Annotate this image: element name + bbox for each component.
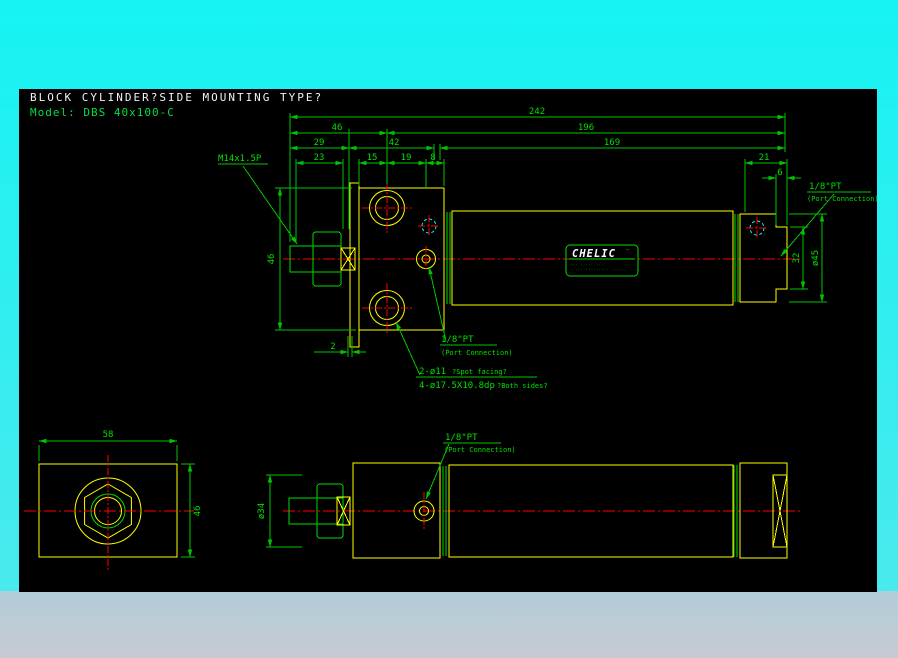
port-sublabel-mid: (Port Connection): [441, 349, 513, 357]
cad-viewer-window: BLOCK CYLINDER?SIDE MOUNTING TYPE? Model…: [0, 0, 898, 658]
counterbore-sublabel: ?Both sides?: [497, 382, 548, 390]
dim-15: 15: [367, 153, 378, 163]
dim-242: 242: [529, 107, 545, 117]
thread-label: M14x1.5P: [218, 154, 262, 164]
dim-21: 21: [759, 153, 770, 163]
dim-58: 58: [103, 430, 114, 440]
port-label-mid: 1/8"PT: [441, 335, 474, 345]
dim-dia45: ø45: [811, 250, 821, 266]
dim-46: 46: [332, 123, 343, 133]
spot-facing-sublabel: ?Spot facing?: [452, 368, 507, 376]
port-sublabel-rear: (Port Connection): [807, 195, 879, 203]
spot-facing-label: 2-ø11: [419, 367, 446, 377]
drawing-model: Model: DBS 40x100-C: [30, 106, 175, 119]
drawing-canvas[interactable]: BLOCK CYLINDER?SIDE MOUNTING TYPE? Model…: [0, 0, 898, 658]
port-sublabel-bottom: (Port Connection): [444, 446, 516, 454]
dim-46-left: 46: [267, 254, 277, 265]
dim-169: 169: [604, 138, 620, 148]
dim-29: 29: [314, 138, 325, 148]
port-label-bottom: 1/8"PT: [445, 433, 478, 443]
brand-fine-print-2: ····· ········· ······ ···: [570, 268, 638, 272]
bottom-strip: [0, 591, 898, 658]
dim-196: 196: [578, 123, 594, 133]
dim-8: 8: [430, 153, 435, 163]
dim-32: 32: [792, 253, 802, 264]
dim-23: 23: [314, 153, 325, 163]
brand-fine-print-1: ··· ····· ···: [570, 263, 604, 267]
dim-2: 2: [330, 342, 335, 352]
drawing-title: BLOCK CYLINDER?SIDE MOUNTING TYPE?: [30, 91, 323, 104]
port-label-rear: 1/8"PT: [809, 182, 842, 192]
dim-6: 6: [777, 168, 782, 178]
dim-19: 19: [401, 153, 412, 163]
dim-dia34: ø34: [257, 503, 267, 519]
brand-name: CHELIC: [572, 248, 616, 260]
dim-46-front: 46: [193, 506, 203, 517]
dim-42: 42: [389, 138, 400, 148]
counterbore-label: 4-ø17.5X10.8dp: [419, 381, 495, 391]
